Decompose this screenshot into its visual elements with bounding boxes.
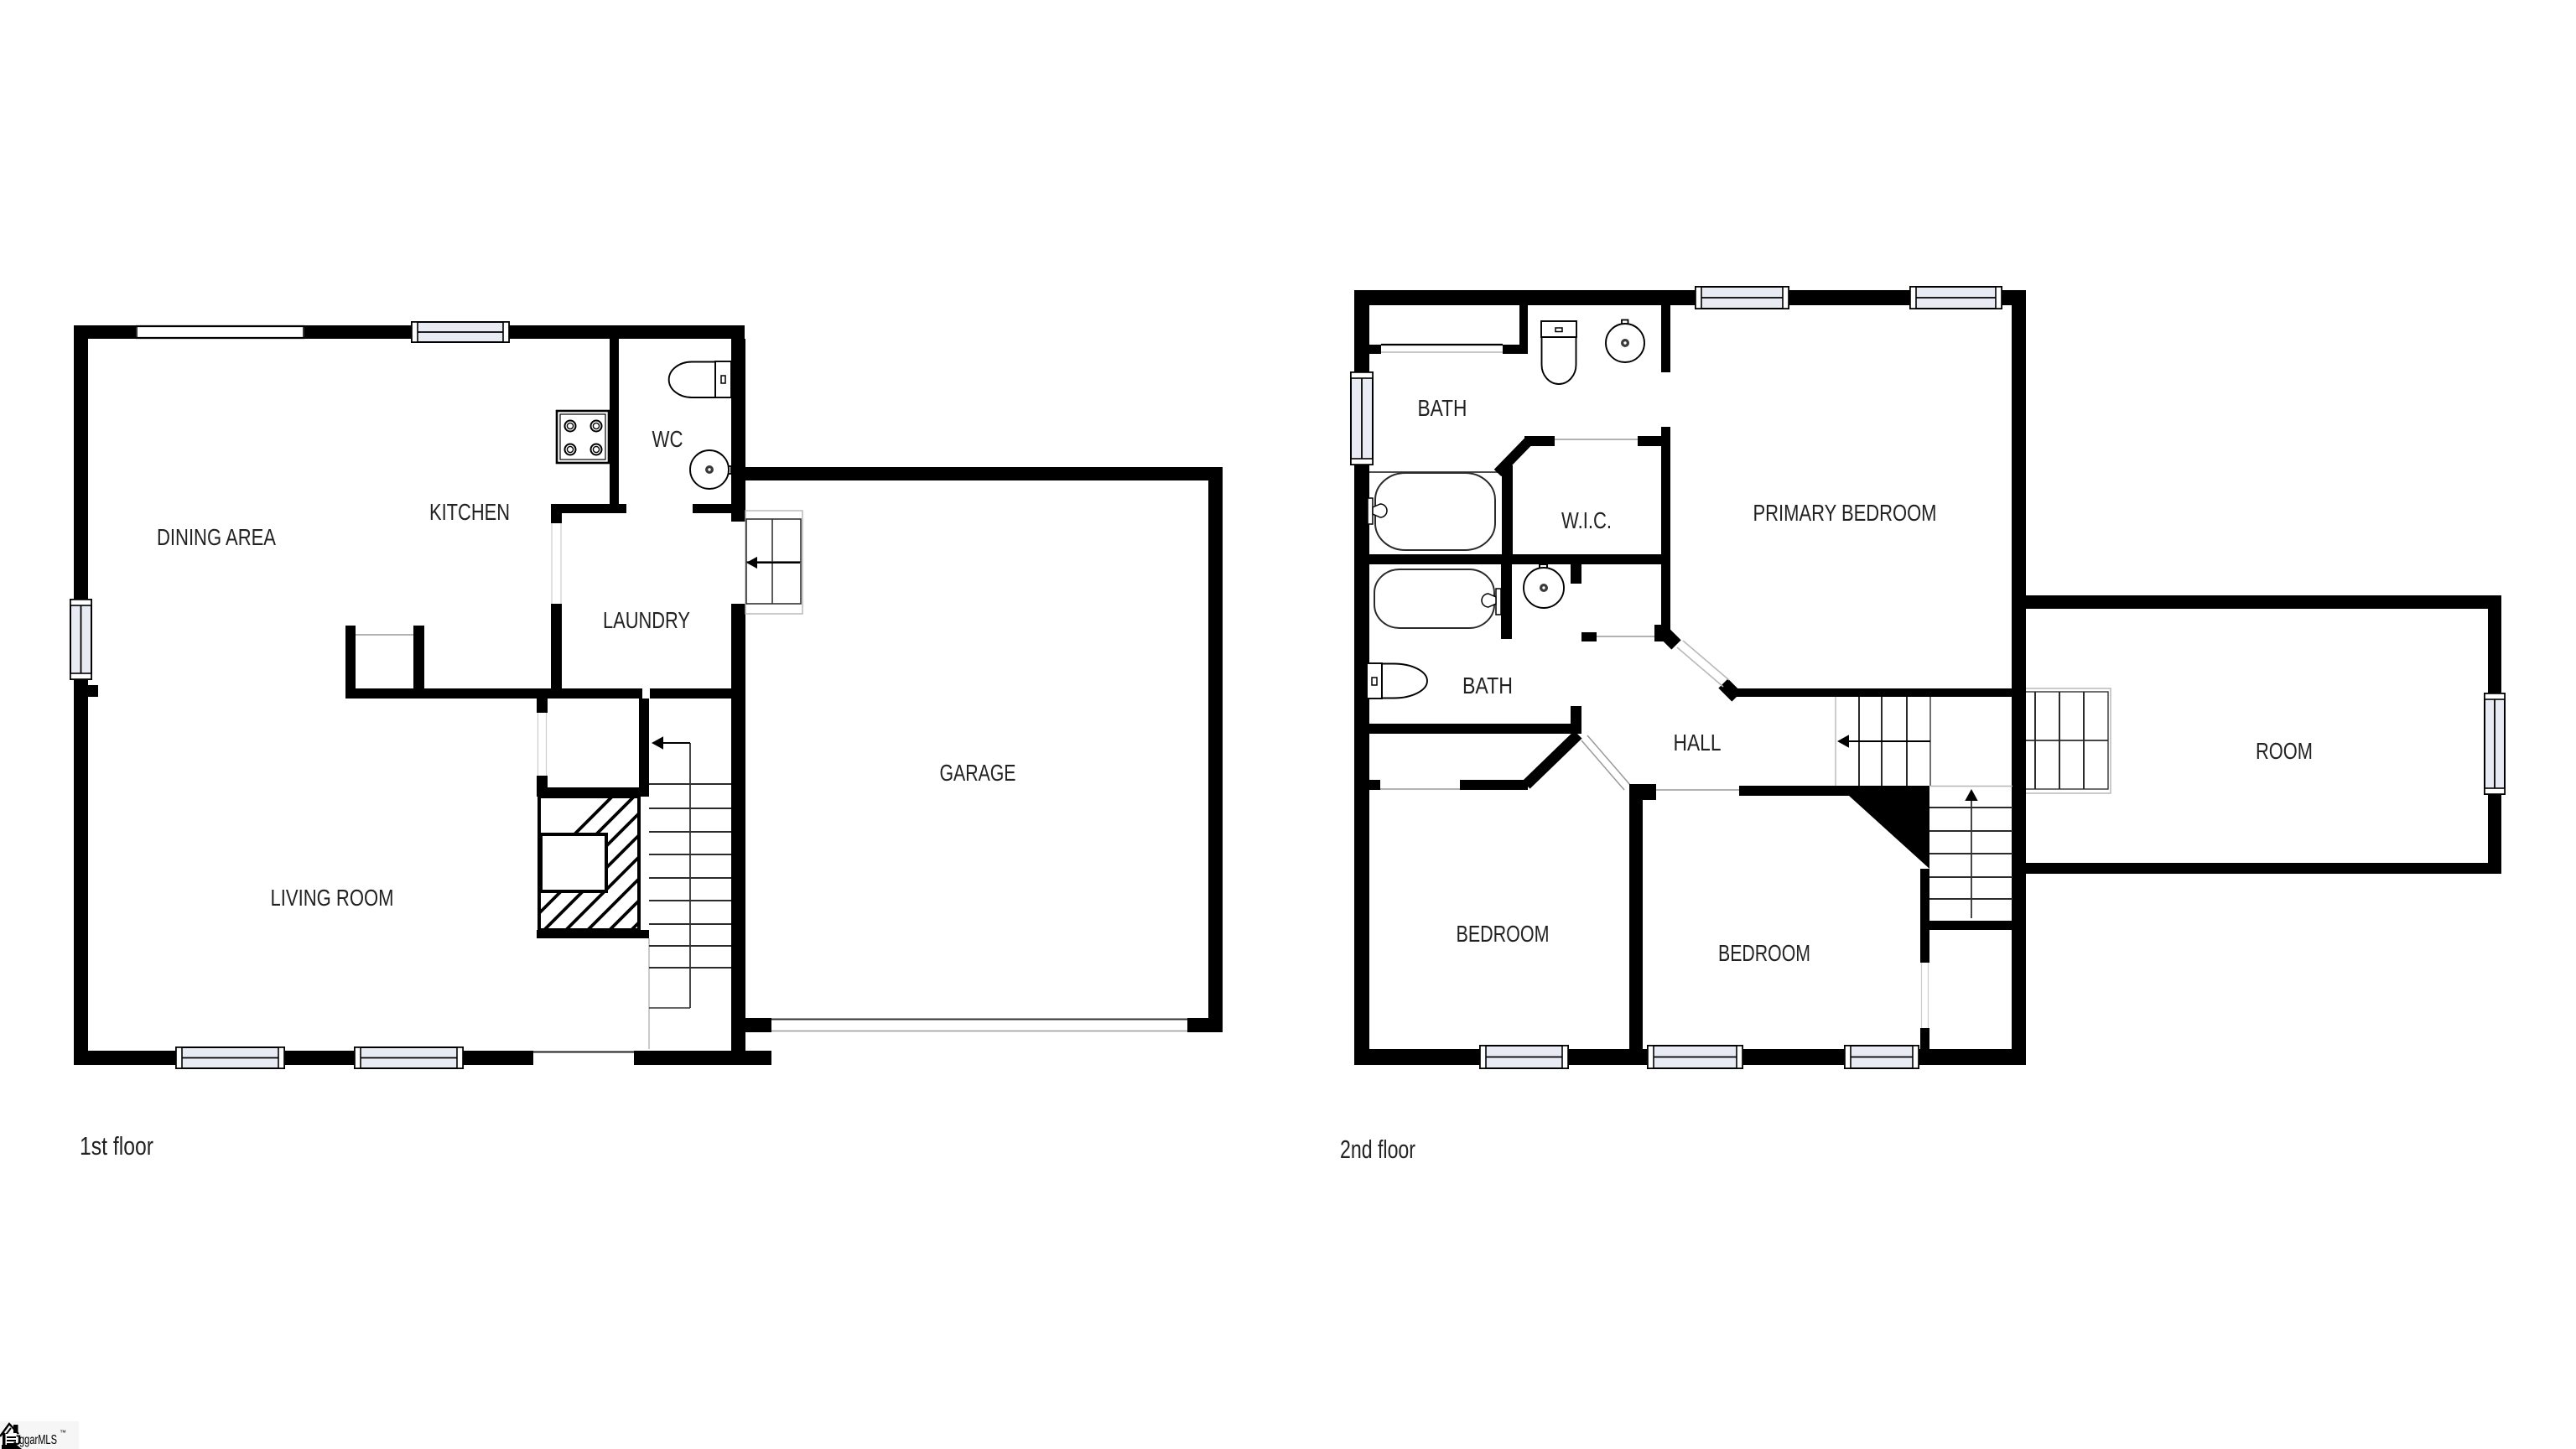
svg-text:BATH: BATH (1418, 395, 1467, 421)
svg-text:ROOM: ROOM (2256, 738, 2313, 764)
svg-text:PRIMARY BEDROOM: PRIMARY BEDROOM (1753, 500, 1937, 526)
svg-text:LIVING ROOM: LIVING ROOM (271, 885, 394, 911)
svg-text:DINING AREA: DINING AREA (157, 524, 277, 550)
svg-text:ggarMLS: ggarMLS (19, 1433, 57, 1447)
svg-text:BEDROOM: BEDROOM (1718, 940, 1810, 966)
svg-text:HALL: HALL (1674, 730, 1722, 756)
svg-text:LAUNDRY: LAUNDRY (603, 607, 690, 633)
svg-text:™: ™ (60, 1429, 66, 1436)
svg-text:WC: WC (652, 426, 683, 452)
svg-text:1st floor: 1st floor (80, 1131, 153, 1161)
svg-text:BEDROOM: BEDROOM (1457, 921, 1550, 947)
svg-text:GARAGE: GARAGE (940, 760, 1016, 786)
svg-text:KITCHEN: KITCHEN (429, 499, 510, 525)
svg-text:W.I.C.: W.I.C. (1561, 507, 1612, 533)
svg-text:BATH: BATH (1462, 673, 1513, 699)
svg-text:2nd floor: 2nd floor (1340, 1135, 1415, 1164)
